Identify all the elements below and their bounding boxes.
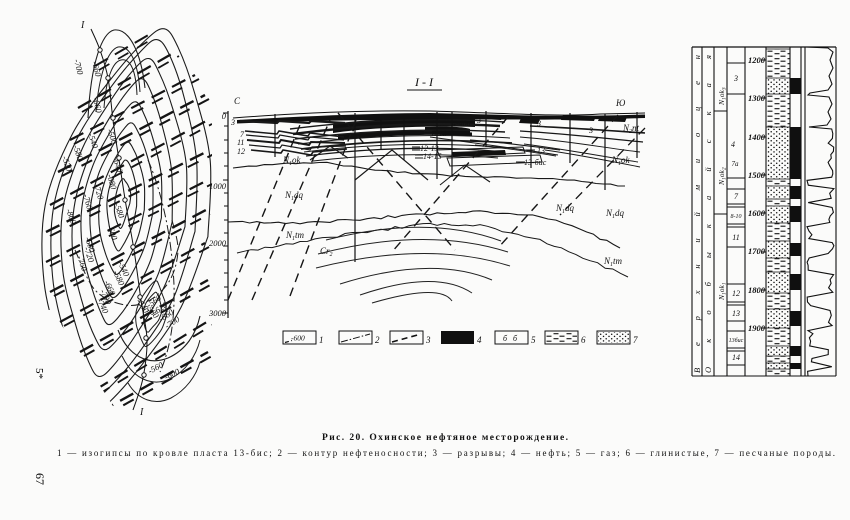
svg-text:I - I: I - I bbox=[414, 75, 434, 89]
svg-text:3: 3 bbox=[476, 116, 481, 125]
svg-text:7а: 7а bbox=[732, 160, 740, 168]
svg-text:4-40а: 4-40а bbox=[452, 119, 471, 128]
svg-text:13-бис: 13-бис bbox=[524, 158, 547, 167]
svg-text:8-10: 8-10 bbox=[432, 129, 447, 138]
svg-text:-600: -600 bbox=[291, 334, 305, 343]
svg-text:2: 2 bbox=[375, 335, 380, 345]
svg-text:67: 67 bbox=[33, 473, 47, 485]
svg-text:С: С bbox=[234, 96, 241, 106]
svg-text:11: 11 bbox=[732, 233, 739, 242]
svg-text:Рис. 20. Охинское нефтяное: Рис. 20. Охинское нефтяное месторождение… bbox=[322, 432, 568, 443]
svg-text:13: 13 bbox=[732, 309, 740, 318]
svg-text:13бис: 13бис bbox=[729, 337, 744, 344]
svg-text:6: 6 bbox=[581, 335, 586, 345]
svg-text:I: I bbox=[139, 407, 144, 418]
svg-text:5: 5 bbox=[531, 335, 536, 345]
svg-text:14-15: 14-15 bbox=[423, 152, 442, 161]
svg-text:13: 13 bbox=[537, 146, 545, 155]
svg-text:Ю: Ю bbox=[615, 98, 626, 108]
svg-text:1700: 1700 bbox=[748, 246, 766, 256]
svg-text:4: 4 bbox=[731, 140, 735, 149]
svg-text:3: 3 bbox=[588, 126, 593, 135]
svg-text:2000: 2000 bbox=[209, 238, 227, 248]
svg-text:1: 1 bbox=[319, 335, 324, 345]
svg-text:3000: 3000 bbox=[208, 308, 227, 318]
svg-text:7: 7 bbox=[633, 335, 638, 345]
svg-text:3: 3 bbox=[230, 118, 235, 127]
svg-text:12: 12 bbox=[237, 147, 245, 156]
svg-text:11: 11 bbox=[237, 138, 244, 147]
svg-text:4: 4 bbox=[477, 335, 482, 345]
svg-text:3: 3 bbox=[536, 119, 541, 128]
svg-text:1 — изогипсы по кровле плас: 1 — изогипсы по кровле пласта 13-бис; 2 … bbox=[57, 448, 835, 458]
svg-text:12: 12 bbox=[732, 289, 740, 298]
svg-text:5*: 5* bbox=[33, 368, 45, 379]
svg-text:14: 14 bbox=[732, 353, 740, 362]
svg-text:I: I bbox=[80, 20, 85, 31]
svg-text:8-10: 8-10 bbox=[731, 214, 742, 220]
svg-text:1000: 1000 bbox=[209, 181, 227, 191]
svg-text:3: 3 bbox=[425, 335, 431, 345]
svg-text:3: 3 bbox=[733, 74, 738, 83]
